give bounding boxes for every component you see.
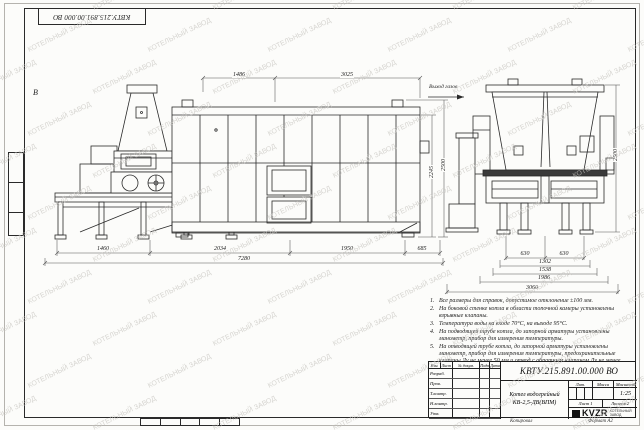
signature-header-cell: Дата bbox=[490, 362, 500, 368]
view-letter-label: В bbox=[33, 88, 38, 97]
note-text: На подводящей трубе котла, до запорной а… bbox=[439, 329, 624, 343]
dim-label: 1538 bbox=[538, 267, 552, 273]
note-number: 3. bbox=[430, 321, 439, 328]
lit-cell bbox=[585, 388, 593, 399]
dim-label: 685 bbox=[417, 246, 428, 252]
signature-role: Пров. bbox=[429, 379, 453, 388]
mass-cell bbox=[593, 388, 614, 399]
strip-cell bbox=[181, 419, 201, 425]
lit-header: Лит. bbox=[569, 381, 593, 387]
bottom-strip-cells bbox=[140, 418, 240, 426]
dim-label: 2500 bbox=[613, 148, 619, 162]
product-name: Котел водогрейный КВ-2,5-ДВ(ВПМ) bbox=[501, 381, 569, 419]
copied-label: Копировал bbox=[510, 419, 532, 424]
signature-header-cell: Подп. bbox=[480, 362, 490, 368]
fuel-hopper bbox=[114, 85, 172, 172]
sheet-number: Лист 1 bbox=[569, 400, 603, 407]
signature-row: Утв. bbox=[429, 409, 500, 419]
dim-label: 3060 bbox=[525, 285, 539, 291]
strip-cell bbox=[161, 419, 181, 425]
end-view bbox=[446, 79, 614, 234]
signature-sign-cell bbox=[480, 409, 490, 418]
title-block-signatures: Изм.Лист№ докум.Подп.Дата Разраб.Пров.Т.… bbox=[429, 362, 501, 419]
dim-label: 1986 bbox=[537, 275, 551, 281]
signature-sign-cell bbox=[480, 399, 490, 408]
sheet-count: Листов 2 bbox=[603, 400, 637, 407]
scale-header: Масштаб bbox=[614, 381, 637, 387]
note-number: 4. bbox=[430, 329, 439, 343]
signature-role: Разраб. bbox=[429, 369, 453, 378]
signature-sign-cell bbox=[480, 369, 490, 378]
note-text: На боковой стенке котла в области топочн… bbox=[439, 306, 624, 320]
gas-outlet-label: Выход газов bbox=[429, 84, 457, 90]
signature-role: Н.контр. bbox=[429, 399, 453, 408]
boiler-doors bbox=[267, 166, 311, 223]
title-block: Изм.Лист№ докум.Подп.Дата Разраб.Пров.Т.… bbox=[428, 361, 636, 418]
note-text: Температура воды на входе 70°С, на выход… bbox=[439, 321, 624, 328]
dim-label: 7280 bbox=[237, 256, 251, 262]
gas-outlet-flange bbox=[420, 141, 429, 153]
product-name-line2: КВ-2,5-ДВ(ВПМ) bbox=[513, 400, 557, 408]
flue-duct-pipe bbox=[446, 133, 478, 232]
dim-label: 2500 bbox=[441, 158, 447, 172]
logo-text: KVZR bbox=[582, 409, 608, 418]
dim-label: 630 bbox=[520, 251, 531, 257]
note-item: 4.На подводящей трубе котла, до запорной… bbox=[430, 329, 624, 343]
signature-date-cell bbox=[490, 389, 500, 398]
note-item: 3.Температура воды на входе 70°С, на вых… bbox=[430, 321, 624, 328]
signature-header-cell: № докум. bbox=[453, 362, 481, 368]
end-dark-band bbox=[483, 170, 607, 176]
signature-row: Разраб. bbox=[429, 369, 500, 379]
dim-label: 1950 bbox=[340, 246, 354, 252]
title-block-right: Лит. Масса Масштаб 1:25 Лист 1 Листов 2 … bbox=[569, 381, 637, 419]
lit-cell bbox=[577, 388, 585, 399]
signature-name-cell bbox=[453, 369, 481, 378]
lit-cell bbox=[569, 388, 577, 399]
signature-date-cell bbox=[490, 379, 500, 388]
mass-header: Масса bbox=[593, 381, 614, 387]
signature-date-cell bbox=[490, 409, 500, 418]
signature-role: Утв. bbox=[429, 409, 453, 418]
signature-row: Пров. bbox=[429, 379, 500, 389]
logo-square-icon bbox=[572, 410, 580, 418]
signature-row: Н.контр. bbox=[429, 399, 500, 409]
signature-name-cell bbox=[453, 409, 481, 418]
note-number: 1. bbox=[430, 298, 439, 305]
front-view bbox=[55, 85, 429, 239]
note-item: 1.Все размеры для справок, допустимое от… bbox=[430, 298, 624, 305]
dim-label: 2034 bbox=[213, 246, 227, 252]
note-number: 2. bbox=[430, 306, 439, 320]
logo-subtitle: КОТЕЛЬНЫЙ ЗАВОД bbox=[610, 410, 632, 417]
strip-cell bbox=[141, 419, 161, 425]
dim-label: 1460 bbox=[96, 246, 110, 252]
signature-name-cell bbox=[453, 389, 481, 398]
signature-row: Т.контр. bbox=[429, 389, 500, 399]
signature-name-cell bbox=[453, 399, 481, 408]
signature-header-cell: Лист bbox=[441, 362, 453, 368]
dim-label: 2245 bbox=[429, 165, 435, 179]
format-label: Формат А2 bbox=[588, 419, 613, 424]
signature-header-cell: Изм. bbox=[429, 362, 441, 368]
signature-sign-cell bbox=[480, 389, 490, 398]
drawing-designation: КВТУ.215.891.00.000 ВО bbox=[501, 362, 637, 381]
title-block-header-row: Изм.Лист№ докум.Подп.Дата bbox=[429, 362, 500, 369]
product-name-line1: Котел водогрейный bbox=[509, 392, 559, 400]
strip-cell bbox=[200, 419, 220, 425]
signature-name-cell bbox=[453, 379, 481, 388]
end-hopper bbox=[486, 79, 604, 170]
signature-sign-cell bbox=[480, 379, 490, 388]
signature-date-cell bbox=[490, 399, 500, 408]
end-midsection bbox=[486, 176, 604, 203]
logo-subtitle-line2: ЗАВОД bbox=[610, 414, 632, 418]
title-block-role-rows: Разраб.Пров.Т.контр.Н.контр.Утв. bbox=[429, 369, 500, 419]
strip-cell bbox=[220, 419, 239, 425]
dim-label: 1486 bbox=[232, 72, 246, 78]
drawing-sheet: КВТУ.215.891.00.000 ВО bbox=[0, 0, 644, 430]
company-logo: KVZR КОТЕЛЬНЫЙ ЗАВОД bbox=[569, 408, 637, 419]
dim-label: 1302 bbox=[538, 259, 552, 265]
signature-date-cell bbox=[490, 369, 500, 378]
end-legs bbox=[497, 203, 593, 234]
note-text: Все размеры для справок, допустимое откл… bbox=[439, 298, 624, 305]
dim-label: 630 bbox=[559, 251, 570, 257]
gas-outlet-arrow bbox=[428, 95, 464, 100]
dim-label: 3025 bbox=[340, 72, 354, 78]
note-item: 2.На боковой стенке котла в области топо… bbox=[430, 306, 624, 320]
signature-role: Т.контр. bbox=[429, 389, 453, 398]
scale-value: 1:25 bbox=[614, 388, 637, 399]
